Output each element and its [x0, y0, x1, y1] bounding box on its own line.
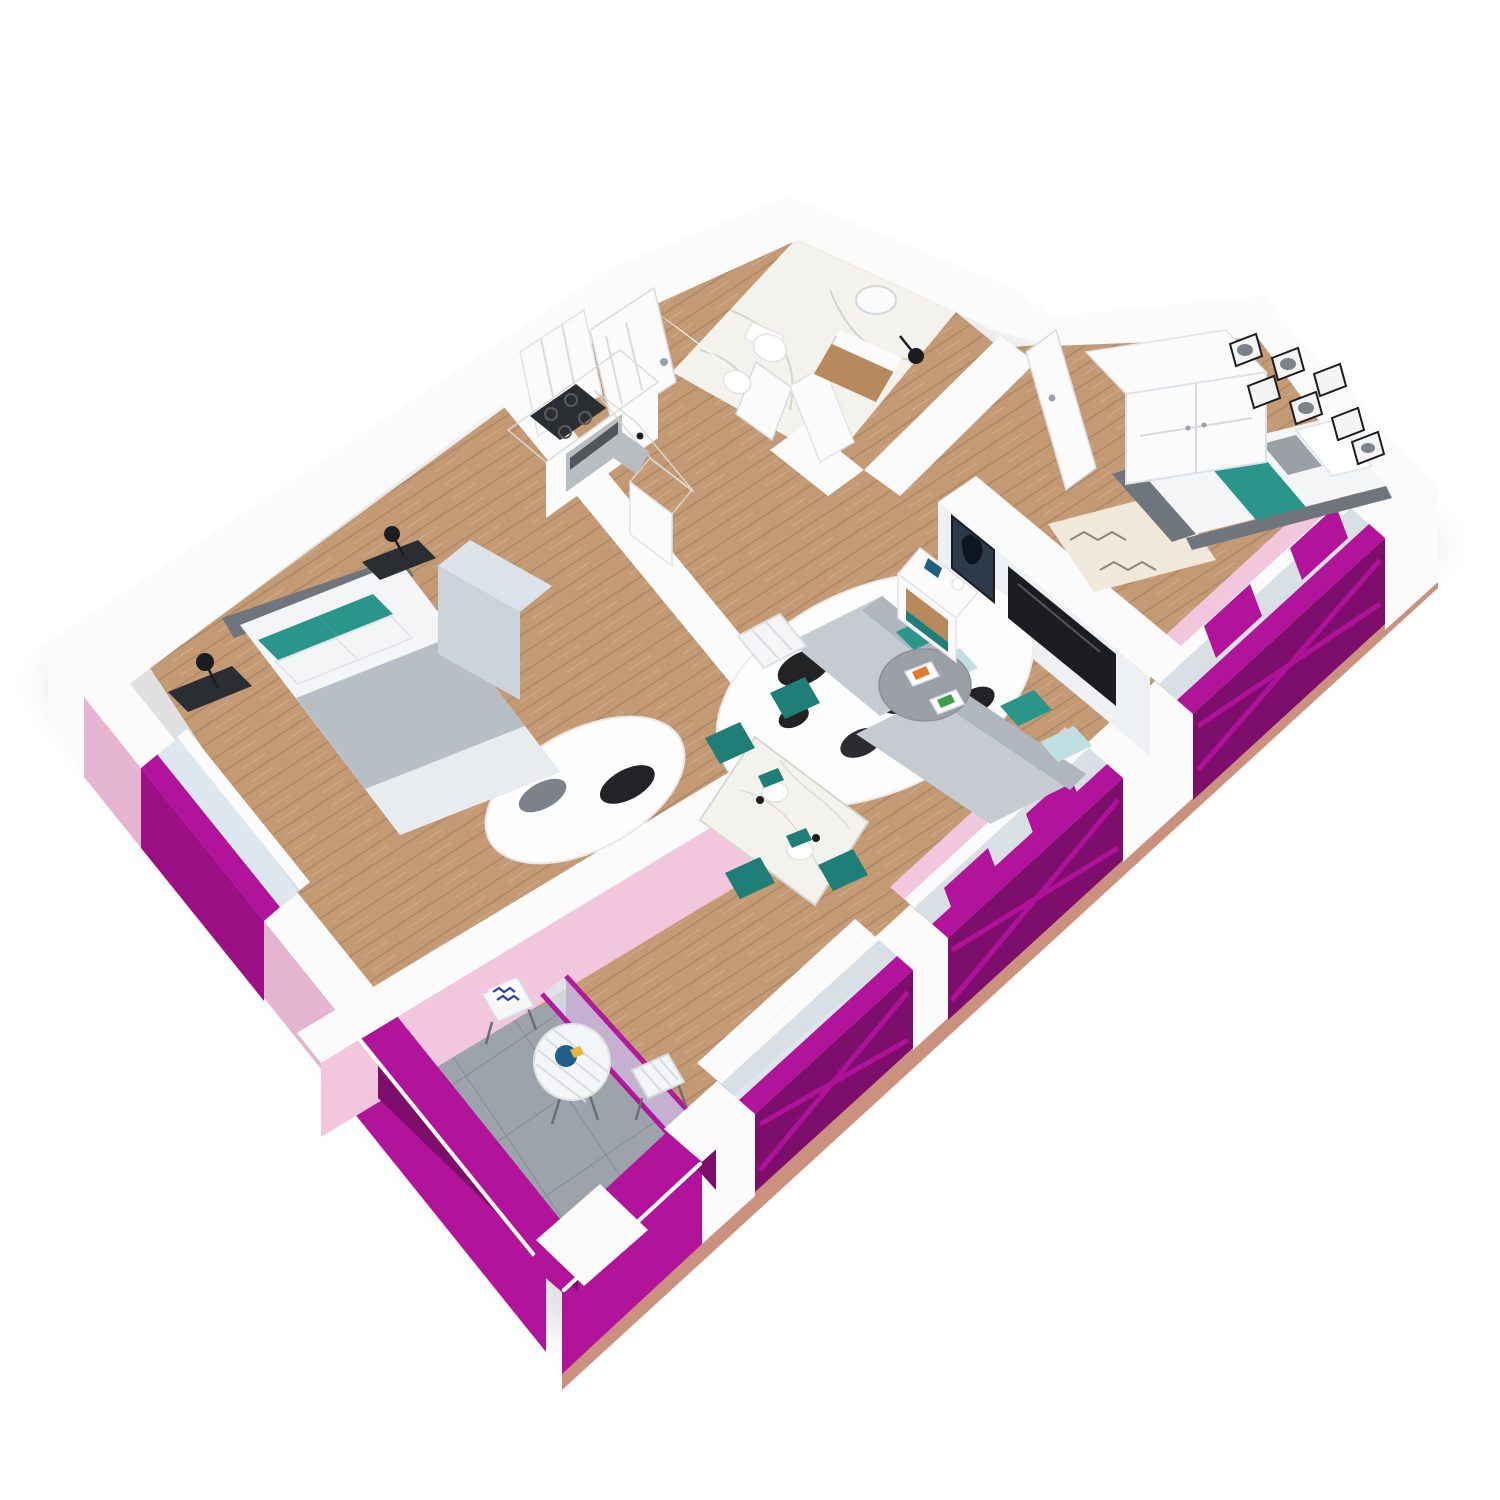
picture-art	[1280, 358, 1296, 370]
cutlery	[756, 796, 764, 804]
faucet	[637, 433, 644, 440]
entry-door-handle	[660, 358, 668, 366]
picture-art	[1298, 402, 1314, 414]
wardrobe2-knob	[1186, 426, 1191, 431]
vase	[952, 578, 964, 590]
coffee-table	[879, 649, 971, 721]
cutlery	[812, 834, 820, 842]
floorplan-render	[0, 0, 1500, 1500]
wardrobe2-knob	[1202, 423, 1207, 428]
picture-art	[1361, 443, 1375, 453]
round-mirror	[856, 286, 896, 314]
floorplan-svg	[0, 0, 1500, 1500]
picture-art	[1237, 344, 1253, 356]
bedroom2-door-handle	[1049, 395, 1056, 402]
